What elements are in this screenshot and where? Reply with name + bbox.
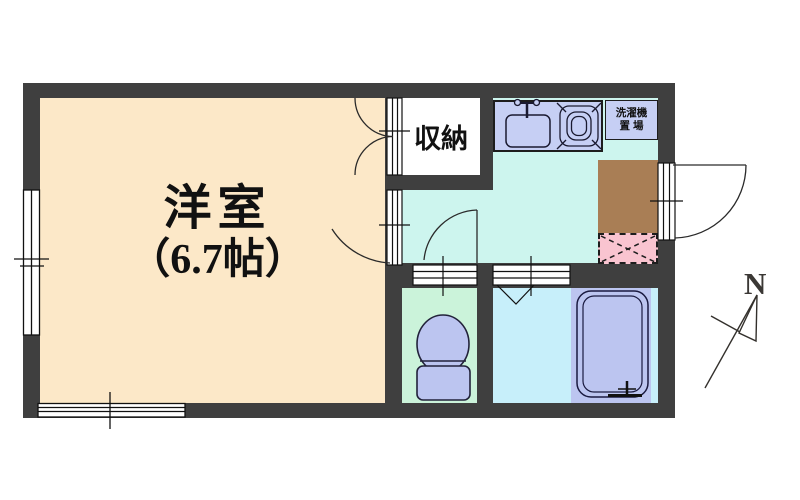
floorplan: 洗濯機 置 場 xyxy=(0,0,800,500)
compass-shaft xyxy=(705,295,757,388)
wall-kitchen-bath xyxy=(385,263,675,288)
wall-left xyxy=(23,83,40,418)
wall-partition xyxy=(385,98,402,403)
north-compass: N xyxy=(705,266,766,388)
wall-top xyxy=(23,83,675,98)
wall-bottom xyxy=(23,403,675,418)
main-room-name: 洋室 xyxy=(55,183,380,236)
compass-north-label: N xyxy=(744,266,766,301)
kitchen-counter xyxy=(493,100,603,152)
washing-machine-area: 洗濯機 置 場 xyxy=(605,100,658,140)
wall-right xyxy=(658,83,675,418)
entrance-door-arc xyxy=(675,165,746,238)
main-room-label: 洋室 （6.7帖） xyxy=(55,183,380,284)
main-room-size: （6.7帖） xyxy=(55,236,380,284)
toilet-floor xyxy=(402,288,477,403)
laundry-label-line1: 洗濯機 xyxy=(616,107,648,120)
compass-arrowhead xyxy=(739,295,757,341)
laundry-label-line2: 置 場 xyxy=(620,120,644,133)
closet-label: 収納 xyxy=(402,98,480,175)
bathtub-zone xyxy=(571,288,651,403)
wall-closet-right xyxy=(480,98,493,190)
wall-toilet-bath xyxy=(477,288,493,403)
entrance-genkan xyxy=(598,160,658,233)
entrance-mat xyxy=(598,233,658,264)
compass-tick xyxy=(711,316,740,332)
